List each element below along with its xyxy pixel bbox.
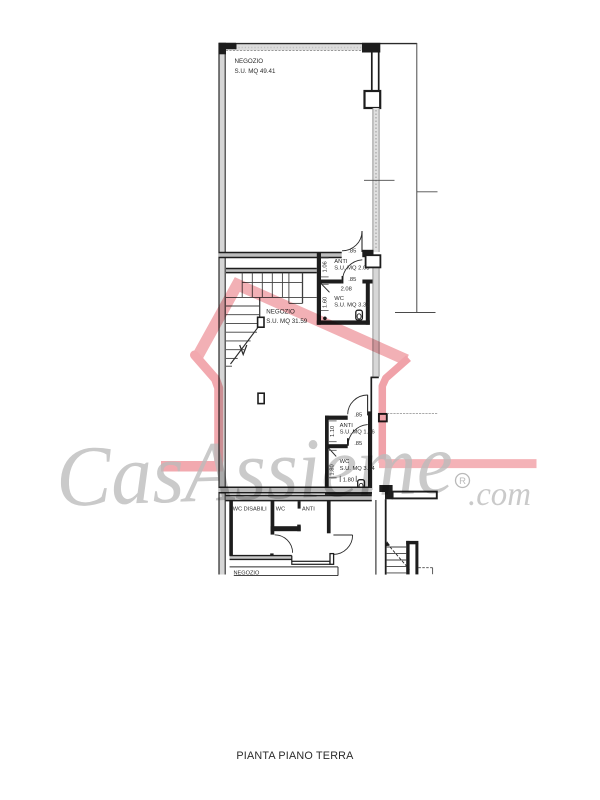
svg-text:NEGOZIO: NEGOZIO bbox=[234, 571, 260, 577]
svg-text:.85: .85 bbox=[348, 248, 356, 254]
svg-text:S.U. MQ 3.32: S.U. MQ 3.32 bbox=[334, 303, 369, 309]
svg-text:NEGOZIO: NEGOZIO bbox=[235, 58, 264, 65]
svg-text:S.U. MQ 49.41: S.U. MQ 49.41 bbox=[235, 68, 276, 75]
svg-text:.85: .85 bbox=[348, 277, 356, 283]
svg-text:.com: .com bbox=[468, 476, 531, 513]
svg-text:2.08: 2.08 bbox=[341, 287, 352, 293]
svg-text:R: R bbox=[459, 476, 466, 487]
svg-text:CasAssieme: CasAssieme bbox=[54, 415, 454, 525]
svg-text:1.60: 1.60 bbox=[323, 297, 329, 308]
svg-text:S.U. MQ 2.08: S.U. MQ 2.08 bbox=[334, 265, 369, 271]
svg-text:WC: WC bbox=[334, 296, 344, 302]
svg-text:1.06: 1.06 bbox=[323, 261, 329, 272]
svg-text:PIANTA PIANO TERRA: PIANTA PIANO TERRA bbox=[236, 750, 354, 762]
svg-text:ANTI: ANTI bbox=[334, 259, 348, 265]
